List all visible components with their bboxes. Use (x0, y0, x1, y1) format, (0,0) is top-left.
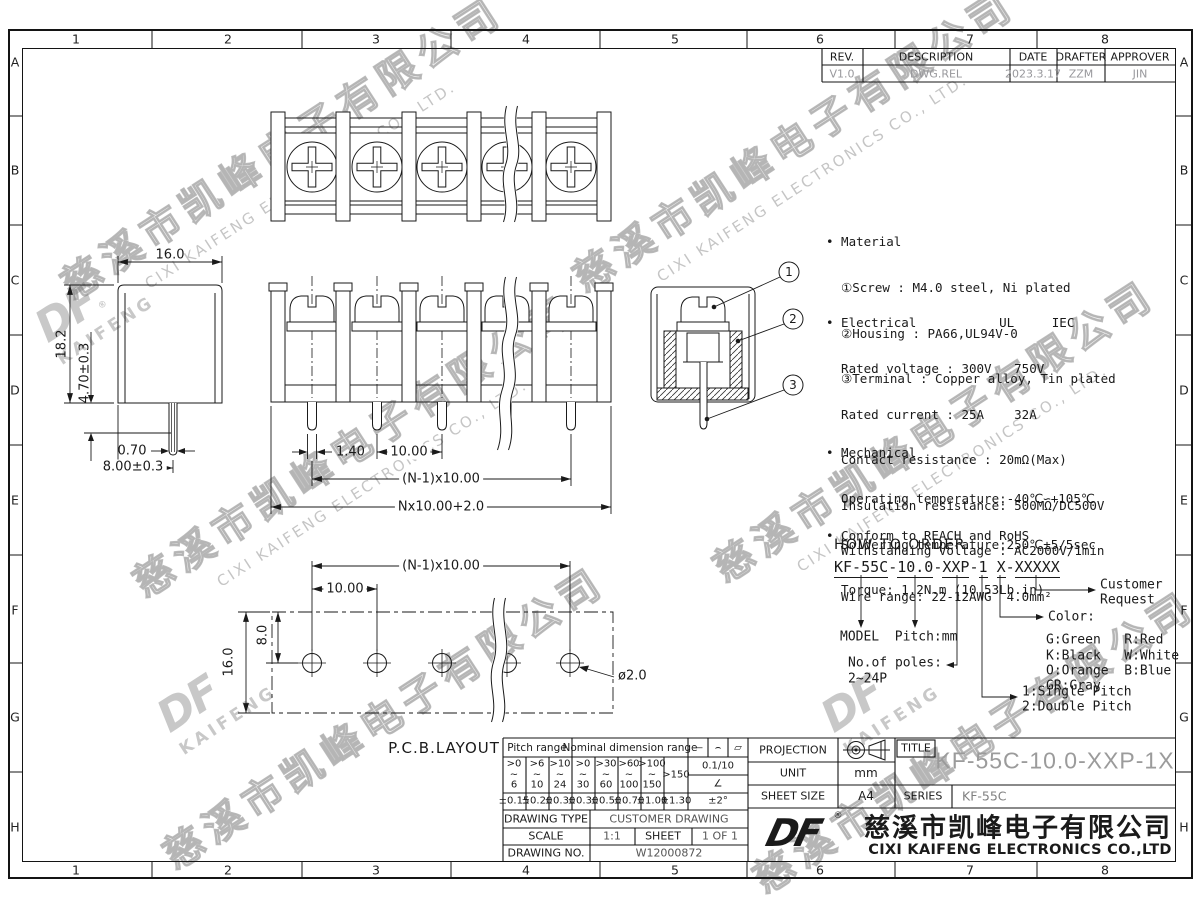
title-label: TITLE (901, 742, 931, 755)
zone-row-label: E (1180, 493, 1188, 508)
zone-row-label: A (11, 55, 20, 70)
zone-row-label: H (1179, 820, 1188, 835)
zone-col-label: 6 (816, 32, 824, 47)
order-label-model-pitch: MODEL Pitch:mm (840, 630, 957, 645)
zone-col-label: 2 (224, 32, 232, 47)
zone-col-label: 5 (671, 32, 679, 47)
dim-label: (N-1)x10.00 (399, 472, 483, 487)
order-label-double-pitch: 2:Double Pitch (1022, 700, 1132, 715)
spec-line: • Electrical UL IEC (826, 315, 1104, 330)
zone-row-label: C (11, 273, 20, 288)
dim-label: 8.0 (256, 625, 271, 646)
zone-col-label: 2 (224, 863, 232, 878)
rev-value: 2023.3.17 (1005, 68, 1061, 81)
series-value: KF-55C (962, 789, 1007, 804)
order-label-poles: No.of poles: (848, 656, 942, 671)
zone-row-label: G (1179, 710, 1189, 725)
zone-row-label: B (11, 163, 20, 178)
tol-angle-icon: ∠ (714, 779, 723, 790)
zone-row-label: C (1180, 273, 1189, 288)
tol-range: >30 ~ 60 (595, 759, 616, 791)
tol-symbol-parallelogram-icon: ▱ (734, 743, 742, 754)
rev-value: JIN (1133, 68, 1148, 81)
dim-label: 10.00 (323, 582, 366, 597)
engineering-drawing-sheet: 慈溪市凯峰电子有限公司 CIXI KAIFENG ELECTRONICS CO.… (0, 0, 1200, 910)
zone-col-label: 3 (372, 32, 380, 47)
tol-flatness-value: 0.1/10 (702, 761, 734, 772)
zone-row-label: D (10, 383, 20, 398)
rev-value: V1.0 (829, 68, 854, 81)
order-code: KF-55C-10.0-XXP-1 X-XXXXX (834, 558, 1060, 576)
zone-row-label: E (11, 493, 19, 508)
tol-header-nominal: Nominal dimension range (562, 742, 697, 754)
sheet-label: SHEET (645, 830, 681, 843)
order-segment: XXP (942, 558, 969, 578)
drawing-title: KF-55C-10.0-XXP-1X (935, 748, 1174, 775)
callout-number: 2 (789, 312, 797, 326)
sheet-size-label: SHEET SIZE (761, 790, 825, 803)
series-label: SERIES (904, 790, 943, 803)
order-separator: - (969, 558, 978, 576)
order-segment: 1 (979, 558, 988, 578)
rev-value: ZZM (1069, 68, 1094, 81)
zone-col-label: 7 (966, 863, 974, 878)
zone-row-label: H (10, 820, 19, 835)
dim-label: Nx10.00+2.0 (395, 500, 487, 515)
tol-symbol-straightness-icon: — (693, 743, 703, 754)
order-separator: - (888, 558, 897, 576)
callout-number: 3 (789, 378, 797, 392)
zone-row-label: A (1180, 55, 1189, 70)
pcb-layout-label: P.C.B.LAYOUT (388, 739, 500, 757)
order-separator: - (1006, 558, 1015, 576)
order-label-poles-range: 2~24P (848, 672, 887, 687)
tol-value: ±1.30 (661, 796, 692, 807)
projection-label: PROJECTION (759, 744, 827, 757)
order-segment: KF-55C (834, 558, 888, 578)
dim-label: 16.0 (156, 248, 185, 263)
order-segment: 10.0 (897, 558, 933, 578)
rev-header: REV. (830, 51, 854, 64)
tol-value: ±2° (708, 796, 728, 807)
dim-label: 1.40 (336, 445, 365, 460)
tol-header-pitch: Pitch range (507, 742, 566, 754)
rev-header: APPROVER (1110, 51, 1169, 64)
rev-header: DESCRIPTION (899, 51, 973, 64)
zone-col-label: 6 (816, 863, 824, 878)
drawing-type-label: DRAWING TYPE (504, 813, 588, 826)
unit-label: UNIT (780, 767, 806, 780)
order-segment: X (997, 558, 1006, 578)
zone-col-label: 1 (72, 32, 80, 47)
zone-row-label: D (1179, 383, 1189, 398)
order-separator (988, 558, 997, 576)
zone-col-label: 4 (522, 863, 530, 878)
dim-label: 10.00 (387, 445, 430, 460)
dim-label: ø2.0 (618, 669, 647, 684)
scale-label: SCALE (528, 830, 563, 843)
zone-col-label: 5 (671, 863, 679, 878)
zone-col-label: 7 (966, 32, 974, 47)
zone-col-label: 4 (522, 32, 530, 47)
tol-range: >60 ~ 100 (618, 759, 639, 791)
drawing-no-value: W12000872 (636, 847, 703, 860)
dim-label: 0.70 (118, 444, 147, 459)
spec-line: • Mechanical (826, 445, 1096, 460)
tol-range: >150 (662, 770, 689, 781)
sheet-size-value: A4 (858, 789, 874, 803)
spec-line: • Material (826, 234, 1116, 249)
order-segment: XXXXX (1015, 558, 1060, 578)
company-name-en: CIXI KAIFENG ELECTRONICS CO.,LTD (868, 842, 1171, 858)
order-label-single-pitch: 1:Single Pitch (1022, 685, 1132, 700)
company-name-cn: 慈溪市凯峰电子有限公司 (864, 808, 1172, 845)
zone-col-label: 3 (372, 863, 380, 878)
order-label-request: Request (1100, 593, 1155, 608)
zone-row-label: B (1180, 163, 1189, 178)
scale-value: 1:1 (603, 830, 621, 843)
tol-range: >0 ~ 30 (576, 759, 591, 791)
zone-col-label: 8 (1101, 863, 1109, 878)
zone-row-label: G (10, 710, 20, 725)
zone-row-label: F (11, 603, 18, 618)
spec-line: Rated voltage : 300V 750V (826, 361, 1104, 376)
drawing-no-label: DRAWING NO. (508, 847, 585, 860)
how-to-order-title: HOW TO ORDER (834, 537, 966, 553)
dim-label: 8.00±0.3 (100, 460, 167, 475)
spec-line: Torque: 1.2N.m (10.53Lb.in) (826, 582, 1096, 597)
order-label-color: Color: (1048, 610, 1095, 625)
zone-col-label: 1 (72, 863, 80, 878)
callout-number: 1 (785, 265, 793, 279)
dim-label: 16.0 (222, 648, 237, 677)
drawing-type-value: CUSTOMER DRAWING (609, 813, 728, 826)
dim-label: 18.2 (55, 330, 70, 359)
order-color-option: G:Green R:Red (1046, 633, 1163, 648)
zone-row-label: F (1180, 603, 1187, 618)
rev-header: DATE (1019, 51, 1048, 64)
sheet-value: 1 OF 1 (702, 830, 738, 843)
zone-col-label: 8 (1101, 32, 1109, 47)
unit-value: mm (854, 766, 877, 780)
rev-header: DRAFTER (1056, 51, 1107, 64)
tol-range: >6 ~ 10 (530, 759, 545, 791)
tol-symbol-arc-icon: ⌢ (715, 743, 722, 754)
registered-icon: ® (834, 811, 843, 821)
tol-range: >10 ~ 24 (549, 759, 570, 791)
order-label-customer: Customer (1100, 578, 1163, 593)
dim-label: 4.70±0.3 (78, 343, 93, 404)
order-color-option: K:Black W:White (1046, 649, 1179, 664)
company-logo: DF (762, 811, 824, 855)
tol-range: >0 ~ 6 (507, 759, 522, 791)
dim-label: (N-1)x10.00 (399, 559, 483, 574)
order-color-option: O:Orange B:Blue (1046, 664, 1171, 679)
rev-value: DWG.REL (910, 68, 962, 81)
